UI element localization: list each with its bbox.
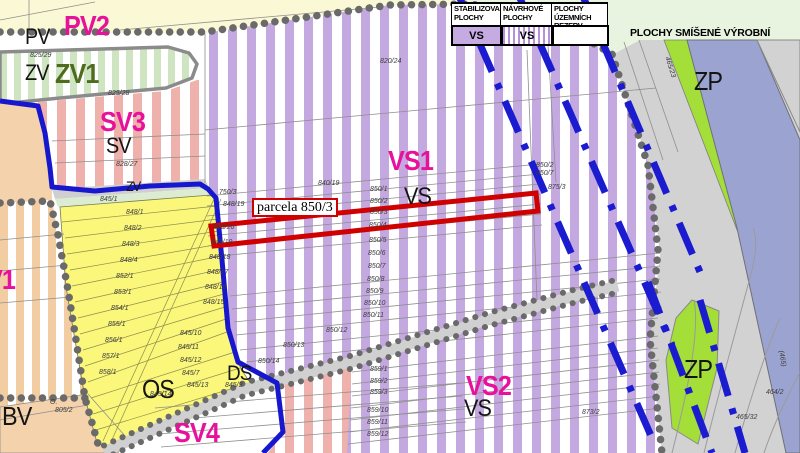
legend-swatch-code: VS <box>469 30 484 42</box>
map-graphic <box>0 0 800 453</box>
legend-swatch-empty <box>552 25 609 46</box>
legend-col-0: STABILIZOVANÉPLOCHYVS <box>451 4 501 46</box>
zoning-map[interactable]: PV2PVZV1ZVSV3SVVS1VSV1OSDSBVSV4VS2VSZPZP… <box>0 0 800 453</box>
legend-swatch-striped: VS <box>501 25 553 46</box>
legend-col-title: STABILIZOVANÉPLOCHY <box>451 4 501 25</box>
legend-col-1: NÁVRHOVÉPLOCHYVS <box>501 4 552 46</box>
legend-col-2: PLOCHY ÚZEMNÍCHREZERV <box>552 4 608 46</box>
highlight-parcel-label: parcela 850/3 <box>252 198 338 217</box>
legend-col-title: PLOCHY ÚZEMNÍCHREZERV <box>552 4 608 25</box>
legend-swatch-code: VS <box>520 30 535 42</box>
legend-columns: STABILIZOVANÉPLOCHYVSNÁVRHOVÉPLOCHYVSPLO… <box>451 4 608 46</box>
legend: STABILIZOVANÉPLOCHYVSNÁVRHOVÉPLOCHYVSPLO… <box>451 2 608 46</box>
legend-right-label: PLOCHY SMÍŠENÉ VÝROBNÍ <box>630 27 770 39</box>
legend-swatch-solid: VS <box>451 25 502 46</box>
legend-col-title: NÁVRHOVÉPLOCHY <box>501 4 552 25</box>
